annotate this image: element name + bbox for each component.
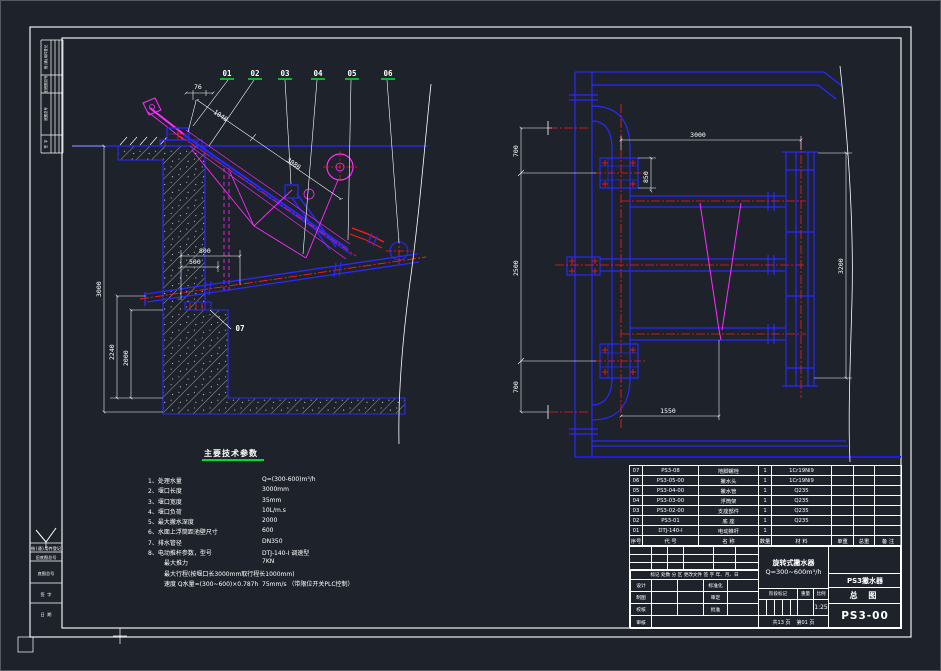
product-name-cell: 旋转式撇水器 Q=300~600m³/h [758,546,829,589]
bom-row: 05PS3-04-00撇水管1Q235 [630,486,902,496]
product-capacity: Q=300~600m³/h [765,568,821,576]
concrete-section [118,146,405,414]
cad-sheet: 借(通)用件登记 旧底图总号 底图总号 签 字 借(通)用件登记 旧底图总号 底… [0,0,941,671]
spec-item: 2、堰口长度3000mm [148,486,468,496]
role-audit: 审核 [630,615,652,629]
balloon-01: 01 [222,69,232,78]
dim-3080: 3080 [285,156,303,172]
sheet-title: 总 图 [828,587,902,604]
bom-table: 07PS3-08地脚螺栓11Cr19Ni9 06PS3-05-00撇水头11Cr… [629,465,902,546]
balloon-02: 02 [250,69,259,78]
spec-item: 1、处理水量Q=(300-600)m³/h [148,476,468,486]
strip-label: 签 字 [43,139,48,148]
bearing-box-top [595,158,645,188]
weir [782,140,818,398]
strip-label: 旧底图总号 [36,554,57,561]
balloon-06: 06 [383,69,393,78]
dim-3000-plan: 3000 [690,131,706,139]
dim-850: 850 [642,171,650,183]
spec-item: 7、排水管径DN350 [148,538,468,548]
bom-row: 07PS3-08地脚螺栓11Cr19Ni9 [630,466,902,476]
spec-item: 6、水面上浮筒距池壁尺寸600 [148,527,468,537]
bottom-left-strip-labels: 借(通)用件登记 旧底图总号 底图总号 签 字 日 期 [31,545,62,618]
spec-subitem: 最大行程(按堰口长3000mm取行程长1000mm) [148,569,468,579]
bearing-box-bottom [595,344,645,378]
dim-500: 500 [189,258,201,266]
scale-value: 1:25 [813,599,829,616]
dim-800: 800 [199,247,211,255]
spec-item: 3、堰口宽度35mm [148,497,468,507]
spec-subitem: 速度 Q水量=(300~600)×0.787h75mm/s （带限位开关PLC控… [148,579,468,589]
strip-label: 借(通)用件登记 [31,545,62,552]
title-block: 07PS3-08地脚螺栓11Cr19Ni9 06PS3-05-00撇水头11Cr… [629,465,901,628]
bom-row: 03PS3-02-00支座部件1Q235 [630,506,902,516]
spec-item: 8、电动推杆参数，型号DTJ-140-Ⅰ 调速型 [148,548,468,558]
pages-cell: 共13 页 第01 页 [758,615,829,629]
dim-76: 76 [194,83,202,91]
spec-item: 5、最大撇水深度2000 [148,517,468,527]
boom [184,135,352,255]
spec-title-underline [202,459,264,461]
bom-row: 04PS3-03-00浮筒架1Q235 [630,496,902,506]
pages-no: 第01 页 [797,619,815,626]
dim-700-bottom: 700 [512,381,520,393]
spec-item: 4、堰口负荷10L/m.s [148,507,468,517]
balloon-04: 04 [313,69,323,78]
dim-1040: 1040 [212,108,230,124]
arms [600,192,785,344]
strip-label: 借(通)用件登记 [43,44,48,69]
dim-3000: 3000 [95,281,103,297]
strip-label: 旧底图总号 [43,75,48,93]
spec-rows: 1、处理水量Q=(300-600)m³/h 2、堰口长度3000mm 3、堰口宽… [148,476,468,589]
bom-row: 02PS3-01底 座1Q235 [630,516,902,526]
swivel-column [548,104,630,430]
spec-title: 主要技术参数 [204,448,258,459]
strip-label: 签 字 [41,591,52,597]
left-view: 01 02 03 04 05 06 07 76 1040 3080 [72,69,431,444]
riser-pipe [569,72,598,457]
right-view: 3000 850 700 2500 700 3200 1550 [512,66,901,462]
dim-1550: 1550 [660,407,676,415]
riser-joint [567,257,600,275]
bom-header-row: 序号代 号名 称数量材 料单重总重备 注 [630,536,902,546]
balloon-05: 05 [347,69,356,78]
model-name: PS3撇水器 [828,573,902,588]
spec-subitem: 最大推力7KN [148,558,468,568]
strip-label: 底图总号 [43,107,48,121]
product-name: 旋转式撇水器 [773,559,815,568]
right-view-dims [518,128,852,420]
drawing-number: PS3-00 [828,603,902,629]
dim-2500: 2500 [512,260,520,276]
bom-row: 06PS3-05-00撇水头11Cr19Ni9 [630,476,902,486]
strip-label: 日 期 [41,612,52,618]
balloon-03: 03 [280,69,290,78]
title-block-lower: 标记 处数 分 区 更改文件 签 字 年、月、日 设计 标准化 制图 审定 校核… [629,545,901,628]
dim-2240: 2240 [108,344,116,360]
pages-total: 共13 页 [773,619,791,626]
top-left-strip-labels: 借(通)用件登记 旧底图总号 底图总号 签 字 [43,44,48,148]
dim-700-top: 700 [512,145,520,157]
revision-grid [630,546,759,570]
dim-3200: 3200 [837,258,845,274]
balloon-07: 07 [235,324,244,333]
bom-row: 01DTJ-140-Ⅰ电动推杆1 [630,526,902,536]
skimmer-head [350,228,412,264]
strip-label: 底图总号 [38,570,55,577]
dim-2000: 2000 [122,350,130,366]
